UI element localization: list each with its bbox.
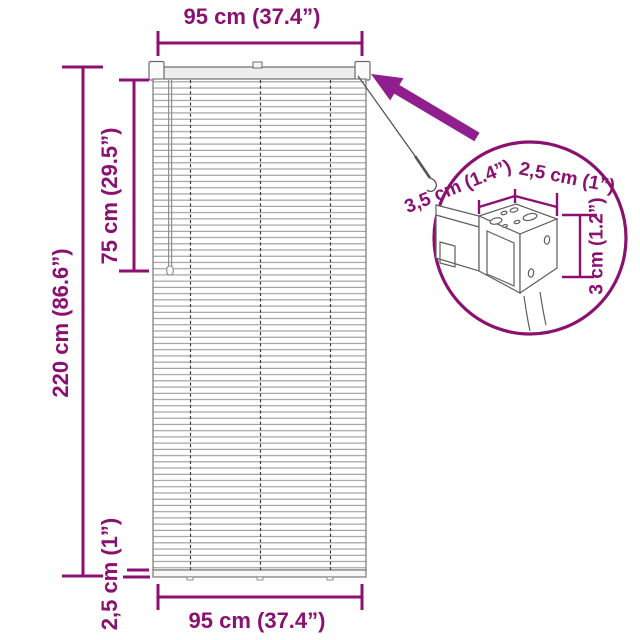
label-cord-length: 75 cm (29.5”) bbox=[99, 128, 121, 265]
detail-side-hole bbox=[544, 235, 550, 244]
dim-top-width bbox=[158, 31, 362, 56]
label-total-height: 220 cm (86.6”) bbox=[50, 248, 72, 397]
bottom-rail bbox=[153, 570, 366, 577]
cord-tassel bbox=[167, 266, 173, 275]
label-bottom-width: 95 cm (37.4”) bbox=[189, 610, 326, 632]
label-bottom-rail-height: 2,5 cm (1”) bbox=[99, 518, 121, 631]
label-top-width: 95 cm (37.4”) bbox=[184, 6, 321, 28]
dim-bottom-width bbox=[158, 584, 362, 610]
headrail-clip bbox=[253, 62, 262, 68]
label-detail-height: 3 cm (1.2”) bbox=[588, 197, 607, 294]
headrail-endcap-right bbox=[355, 62, 370, 81]
bottom-rail-button bbox=[257, 577, 263, 580]
bottom-rail-button bbox=[187, 577, 193, 580]
dim-cord-length bbox=[119, 80, 149, 271]
bottom-rail-button bbox=[327, 577, 333, 580]
headrail bbox=[151, 67, 368, 79]
diagram-artwork bbox=[0, 0, 640, 640]
detail-callout-arrow-icon bbox=[371, 74, 480, 141]
blind-drawing bbox=[149, 62, 436, 581]
blind-dimension-diagram: 95 cm (37.4”) 95 cm (37.4”) 220 cm (86.6… bbox=[0, 0, 640, 640]
dim-bottom-rail-height bbox=[123, 570, 150, 577]
detail-side-hole bbox=[528, 268, 534, 277]
slats bbox=[153, 79, 366, 570]
headrail-endcap-left bbox=[149, 62, 164, 81]
